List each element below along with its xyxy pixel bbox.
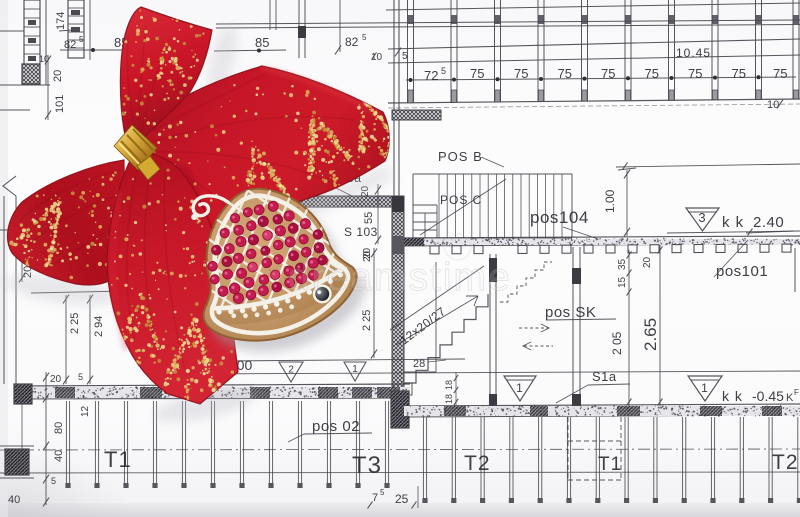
svg-text:10: 10 [39,54,49,64]
svg-text:2.40: 2.40 [753,214,784,231]
svg-text:pos SK: pos SK [545,304,596,321]
svg-text:5: 5 [441,66,446,76]
svg-text:5: 5 [362,33,367,42]
svg-text:F: F [794,388,799,397]
svg-text:174: 174 [55,12,67,30]
svg-text:18: 18 [444,394,454,404]
svg-text:POS B: POS B [438,149,483,164]
svg-text:5: 5 [402,51,408,62]
svg-text:S 103: S 103 [344,225,378,239]
svg-text:2 25: 2 25 [69,313,81,334]
svg-text:T1: T1 [598,454,622,475]
svg-text:75: 75 [514,66,528,81]
svg-text:POS C: POS C [440,193,482,207]
svg-text:101: 101 [54,95,66,113]
svg-text:pos101: pos101 [716,263,768,280]
svg-text:35: 35 [617,258,628,270]
svg-text:1: 1 [352,364,358,375]
svg-text:10: 10 [767,99,779,111]
svg-text:5: 5 [79,35,84,44]
svg-text:82: 82 [345,35,359,49]
svg-text:75: 75 [732,66,746,81]
svg-text:5: 5 [380,488,385,497]
svg-text:10.45: 10.45 [676,46,711,60]
svg-text:75: 75 [558,66,572,81]
svg-text:K: K [786,392,794,404]
svg-text:10: 10 [371,52,383,63]
svg-text:55: 55 [363,212,375,224]
svg-text:2 94: 2 94 [93,316,105,337]
svg-text:40: 40 [53,450,65,462]
svg-text:1.00: 1.00 [603,189,617,213]
svg-text:2 05: 2 05 [610,331,624,355]
svg-text:75: 75 [773,66,787,81]
svg-text:T2: T2 [772,451,799,474]
svg-text:75: 75 [470,66,484,81]
svg-text:40: 40 [8,494,20,506]
svg-text:5: 5 [51,476,56,486]
svg-text:T3: T3 [352,452,382,479]
svg-text:18: 18 [444,380,454,390]
svg-text:7: 7 [372,492,378,504]
svg-text:3: 3 [698,210,705,225]
svg-text:12: 12 [80,405,91,417]
svg-text:75: 75 [601,66,615,81]
svg-text:1: 1 [701,381,708,395]
svg-text:k k: k k [722,214,744,231]
svg-text:-0.45: -0.45 [752,388,784,404]
svg-text:2: 2 [288,365,294,376]
svg-text:25: 25 [395,492,409,506]
svg-text:2 25: 2 25 [361,310,373,331]
svg-text:1: 1 [516,381,523,395]
svg-text:pos 02: pos 02 [312,418,360,435]
svg-text:15: 15 [617,276,628,288]
svg-text:pos104: pos104 [530,208,589,227]
svg-text:T2: T2 [464,452,491,475]
svg-text:75: 75 [645,66,659,81]
svg-text:75: 75 [688,66,702,81]
svg-text:72: 72 [424,68,438,83]
svg-text:dreamstime: dreamstime [288,256,512,299]
svg-text:85: 85 [255,35,269,50]
svg-text:20: 20 [642,256,653,268]
svg-text:k k: k k [722,388,743,404]
svg-text:2.65: 2.65 [641,318,660,351]
svg-text:20: 20 [52,70,64,82]
svg-text:S1a: S1a [592,369,617,384]
svg-text:20: 20 [50,374,62,385]
svg-text:80: 80 [53,422,65,434]
svg-text:T1: T1 [104,447,132,472]
svg-text:5: 5 [78,372,83,382]
svg-text:82: 82 [64,39,76,51]
